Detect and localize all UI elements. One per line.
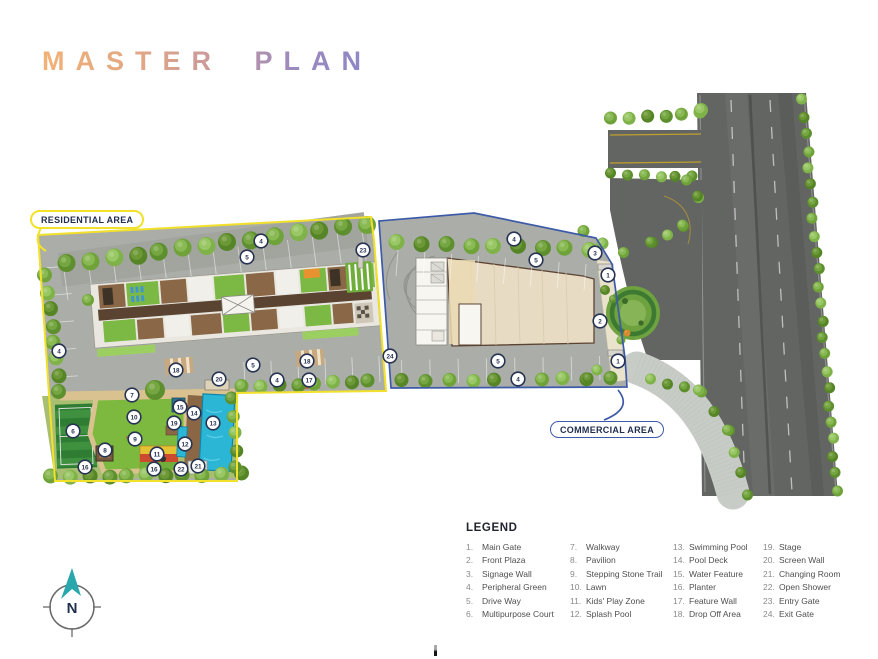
legend-item-label: Feature Wall <box>689 595 737 608</box>
legend-columns: 1.Main Gate2.Front Plaza3.Signage Wall4.… <box>466 541 866 621</box>
plan-marker-number: 4 <box>57 348 61 355</box>
plan-marker: 20 <box>212 372 226 386</box>
tree-icon <box>604 371 618 385</box>
legend-item-num: 21. <box>763 568 779 581</box>
plan-marker: 5 <box>246 358 260 372</box>
tree-icon <box>43 301 58 316</box>
tree-icon <box>485 238 501 254</box>
tree-icon <box>618 247 629 258</box>
tree-icon <box>798 112 809 123</box>
tree-icon <box>693 385 704 396</box>
tree-icon <box>583 373 594 384</box>
plan-marker: 13 <box>206 416 220 430</box>
legend-item-num: 11. <box>570 595 586 608</box>
legend-item-num: 18. <box>673 608 689 621</box>
legend-item: 8.Pavilion <box>570 554 673 567</box>
plan-marker: 14 <box>187 406 201 420</box>
plan-marker-number: 5 <box>251 362 255 369</box>
tree-icon <box>214 467 229 482</box>
tree-icon <box>819 348 830 359</box>
tree-icon <box>824 382 835 393</box>
tree-icon <box>801 128 812 139</box>
plan-marker: 18 <box>169 363 183 377</box>
legend-column: 19.Stage20.Screen Wall21.Changing Room22… <box>763 541 863 621</box>
legend-item-num: 17. <box>673 595 689 608</box>
tree-icon <box>557 240 573 256</box>
tree-icon <box>722 425 733 436</box>
plan-marker: 11 <box>150 447 164 461</box>
tree-icon <box>389 234 405 250</box>
legend-item-label: Stepping Stone Trail <box>586 568 663 581</box>
legend-item-num: 5. <box>466 595 482 608</box>
plan-marker-number: 3 <box>593 250 597 257</box>
plan-marker: 4 <box>52 344 66 358</box>
legend-item: 22.Open Shower <box>763 581 863 594</box>
tree-icon <box>37 268 52 283</box>
plan-marker-number: 1 <box>616 358 620 365</box>
tree-icon <box>361 374 375 388</box>
tree-icon <box>729 447 740 458</box>
plan-marker-number: 22 <box>177 466 185 473</box>
tree-icon <box>443 373 457 387</box>
tree-icon <box>622 170 633 181</box>
legend-item-num: 1. <box>466 541 482 554</box>
tree-icon <box>174 239 192 257</box>
plan-marker: 18 <box>300 354 314 368</box>
tree-icon <box>600 285 610 295</box>
legend-item: 14.Pool Deck <box>673 554 763 567</box>
tree-icon <box>679 381 690 392</box>
plan-marker: 8 <box>98 443 112 457</box>
tree-icon <box>266 227 284 245</box>
tree-icon <box>802 162 813 173</box>
plan-marker: 21 <box>191 459 205 473</box>
plan-marker-number: 9 <box>133 436 137 443</box>
legend-item: 4.Peripheral Green <box>466 581 570 594</box>
plan-marker-number: 14 <box>190 410 198 417</box>
legend-item-num: 16. <box>673 581 689 594</box>
plan-marker: 3 <box>588 246 602 260</box>
plan-marker: 2 <box>593 314 607 328</box>
tree-icon <box>656 171 667 182</box>
legend: LEGEND 1.Main Gate2.Front Plaza3.Signage… <box>466 522 866 621</box>
legend-item-label: Peripheral Green <box>482 581 547 594</box>
plan-marker: 1 <box>611 354 625 368</box>
legend-item-num: 19. <box>763 541 779 554</box>
plan-marker-number: 18 <box>303 358 311 365</box>
legend-item-label: Drive Way <box>482 595 521 608</box>
legend-item: 5.Drive Way <box>466 595 570 608</box>
plan-marker: 24 <box>383 349 397 363</box>
tree-icon <box>254 380 268 394</box>
plan-marker: 10 <box>127 410 141 424</box>
legend-item: 19.Stage <box>763 541 863 554</box>
residential-area-label: RESIDENTIAL AREA <box>30 210 144 229</box>
tree-icon <box>326 375 340 389</box>
tree-icon <box>52 368 67 383</box>
plan-marker: 6 <box>66 424 80 438</box>
legend-item-label: Stage <box>779 541 801 554</box>
commercial-area-label-text: COMMERCIAL AREA <box>560 425 654 435</box>
tree-icon <box>681 175 692 186</box>
legend-item: 2.Front Plaza <box>466 554 570 567</box>
tree-icon <box>662 379 673 390</box>
tree-icon <box>229 461 242 474</box>
tree-icon <box>82 294 94 306</box>
plan-marker: 4 <box>270 373 284 387</box>
legend-item-label: Main Gate <box>482 541 521 554</box>
tree-icon <box>803 146 814 157</box>
legend-item-label: Planter <box>689 581 716 594</box>
legend-item-label: Signage Wall <box>482 568 532 581</box>
tree-icon <box>832 486 843 497</box>
plan-marker: 9 <box>128 432 142 446</box>
tree-icon <box>796 94 807 105</box>
tree-icon <box>414 236 430 252</box>
plan-marker-number: 4 <box>516 376 520 383</box>
legend-item-label: Water Feature <box>689 568 743 581</box>
plan-marker-number: 20 <box>215 376 223 383</box>
tree-icon <box>81 252 99 270</box>
commercial-area-label: COMMERCIAL AREA <box>550 421 664 438</box>
plan-marker: 15 <box>173 400 187 414</box>
tree-icon <box>592 365 603 376</box>
tree-icon <box>605 168 616 179</box>
plan-marker-number: 16 <box>81 464 89 471</box>
plan-marker-number: 10 <box>130 414 138 421</box>
plan-marker-number: 11 <box>154 451 161 458</box>
tree-icon <box>334 218 352 236</box>
plan-marker: 1 <box>601 268 615 282</box>
legend-item: 23.Entry Gate <box>763 595 863 608</box>
tree-icon <box>467 374 481 388</box>
tree-icon <box>145 380 165 400</box>
plan-marker: 12 <box>178 437 192 451</box>
legend-item-num: 15. <box>673 568 689 581</box>
tree-icon <box>828 433 839 444</box>
legend-item-num: 22. <box>763 581 779 594</box>
tree-icon <box>670 171 681 182</box>
tree-icon <box>677 220 688 231</box>
tree-icon <box>439 236 455 252</box>
tree-icon <box>815 297 826 308</box>
legend-item-label: Pool Deck <box>689 554 728 567</box>
legend-item-label: Drop Off Area <box>689 608 741 621</box>
tree-icon <box>809 231 820 242</box>
plan-marker-number: 23 <box>359 247 367 254</box>
legend-item: 24.Exit Gate <box>763 608 863 621</box>
plan-marker: 19 <box>167 416 181 430</box>
plan-marker-number: 4 <box>259 238 263 245</box>
legend-item: 12.Splash Pool <box>570 608 673 621</box>
legend-title: LEGEND <box>466 522 866 534</box>
legend-item-num: 3. <box>466 568 482 581</box>
plan-marker: 4 <box>511 372 525 386</box>
legend-item-num: 12. <box>570 608 586 621</box>
legend-item-num: 6. <box>466 608 482 621</box>
roundabout-green <box>606 286 660 340</box>
tree-icon <box>229 426 242 439</box>
legend-item-num: 14. <box>673 554 689 567</box>
plan-marker: 16 <box>147 462 161 476</box>
legend-item-num: 2. <box>466 554 482 567</box>
plan-marker-number: 21 <box>194 463 202 470</box>
tree-icon <box>198 237 216 255</box>
tree-icon <box>817 332 828 343</box>
residential-area-label-text: RESIDENTIAL AREA <box>41 215 133 225</box>
legend-column: 7.Walkway8.Pavilion9.Stepping Stone Trai… <box>570 541 673 621</box>
compass-north-letter: N <box>67 600 78 617</box>
legend-item-label: Swimming Pool <box>689 541 748 554</box>
legend-item: 16.Planter <box>673 581 763 594</box>
legend-item-label: Entry Gate <box>779 595 820 608</box>
tree-icon <box>818 316 829 327</box>
tree-icon <box>813 282 824 293</box>
legend-item-label: Screen Wall <box>779 554 825 567</box>
tree-icon <box>692 191 703 202</box>
plan-marker: 7 <box>125 388 139 402</box>
tree-icon <box>807 197 818 208</box>
plan-marker-number: 5 <box>534 257 538 264</box>
legend-item: 20.Screen Wall <box>763 554 863 567</box>
plan-marker-number: 4 <box>512 236 516 243</box>
tree-icon <box>827 451 838 462</box>
legend-item: 7.Walkway <box>570 541 673 554</box>
tree-icon <box>660 110 673 123</box>
tree-icon <box>742 490 753 501</box>
legend-item: 17.Feature Wall <box>673 595 763 608</box>
tree-icon <box>102 470 117 485</box>
tree-icon <box>826 417 837 428</box>
tree-icon <box>623 112 636 125</box>
tree-icon <box>395 373 409 387</box>
tree-icon <box>63 470 78 485</box>
tree-icon <box>675 108 688 121</box>
tree-icon <box>464 238 480 254</box>
plan-marker-number: 18 <box>172 367 180 374</box>
legend-item: 10.Lawn <box>570 581 673 594</box>
legend-item-label: Changing Room <box>779 568 840 581</box>
legend-item-label: Pavilion <box>586 554 616 567</box>
tree-icon <box>617 336 626 345</box>
tree-icon <box>310 222 328 240</box>
tree-icon <box>806 213 817 224</box>
legend-item: 13.Swimming Pool <box>673 541 763 554</box>
tree-icon <box>51 384 66 399</box>
legend-item-num: 20. <box>763 554 779 567</box>
tree-icon <box>58 254 76 272</box>
tree-icon <box>823 401 834 412</box>
legend-item: 9.Stepping Stone Trail <box>570 568 673 581</box>
tree-icon <box>811 247 822 258</box>
plan-marker-number: 16 <box>150 466 158 473</box>
plan-marker: 4 <box>254 234 268 248</box>
compass: N <box>34 563 110 643</box>
legend-item-num: 13. <box>673 541 689 554</box>
legend-item-label: Lawn <box>586 581 606 594</box>
plan-marker-number: 13 <box>209 420 217 427</box>
plan-marker-number: 19 <box>170 420 178 427</box>
tree-icon <box>641 110 654 123</box>
tree-icon <box>694 103 708 117</box>
plan-marker: 22 <box>174 462 188 476</box>
tree-icon <box>129 247 147 265</box>
plan-marker-number: 17 <box>305 377 313 384</box>
tree-icon <box>814 263 825 274</box>
tree-icon <box>535 373 549 387</box>
legend-item-label: Kids' Play Zone <box>586 595 645 608</box>
legend-item: 6.Multipurpose Court <box>466 608 570 621</box>
legend-item-num: 7. <box>570 541 586 554</box>
tree-icon <box>235 379 249 393</box>
plan-marker-number: 4 <box>275 377 279 384</box>
legend-item: 15.Water Feature <box>673 568 763 581</box>
tree-icon <box>487 373 501 387</box>
tree-icon <box>805 178 816 189</box>
tree-icon <box>709 406 720 417</box>
plan-marker-number: 6 <box>71 428 75 435</box>
plan-marker-number: 1 <box>606 272 610 279</box>
tree-icon <box>645 237 656 248</box>
tree-icon <box>290 223 308 241</box>
legend-item-num: 8. <box>570 554 586 567</box>
legend-item-num: 9. <box>570 568 586 581</box>
page-title: MASTER PLAN <box>42 46 372 77</box>
plan-marker: 5 <box>529 253 543 267</box>
plan-marker-number: 24 <box>386 353 394 360</box>
legend-item-label: Exit Gate <box>779 608 814 621</box>
tree-icon <box>419 374 433 388</box>
legend-item: 11.Kids' Play Zone <box>570 595 673 608</box>
tree-icon <box>639 169 650 180</box>
legend-item: 1.Main Gate <box>466 541 570 554</box>
tree-icon <box>556 371 570 385</box>
tree-icon <box>345 375 359 389</box>
tree-icon <box>735 467 746 478</box>
tree-icon <box>822 366 833 377</box>
legend-item: 21.Changing Room <box>763 568 863 581</box>
legend-item-label: Front Plaza <box>482 554 525 567</box>
legend-column: 13.Swimming Pool14.Pool Deck15.Water Fea… <box>673 541 763 621</box>
tree-icon <box>624 330 631 337</box>
tree-icon <box>150 243 168 261</box>
legend-item-label: Walkway <box>586 541 620 554</box>
tree-icon <box>604 112 617 125</box>
plan-marker-number: 15 <box>176 404 184 411</box>
legend-item-label: Splash Pool <box>586 608 631 621</box>
legend-item-num: 4. <box>466 581 482 594</box>
tree-icon <box>46 319 61 334</box>
plan-marker: 23 <box>356 243 370 257</box>
plan-marker-number: 5 <box>245 254 249 261</box>
page-edge-artifact <box>434 645 437 656</box>
legend-item-label: Multipurpose Court <box>482 608 554 621</box>
legend-item: 18.Drop Off Area <box>673 608 763 621</box>
legend-item-num: 24. <box>763 608 779 621</box>
plan-marker-number: 12 <box>181 441 189 448</box>
plan-marker-number: 2 <box>598 318 602 325</box>
legend-item-num: 10. <box>570 581 586 594</box>
tree-icon <box>662 230 673 241</box>
plan-marker-number: 7 <box>130 392 134 399</box>
tree-icon <box>218 233 236 251</box>
plan-marker-number: 5 <box>496 358 500 365</box>
legend-item: 3.Signage Wall <box>466 568 570 581</box>
tree-icon <box>830 467 841 478</box>
tree-icon <box>105 248 123 266</box>
tree-icon <box>645 374 656 385</box>
plan-marker: 16 <box>78 460 92 474</box>
plan-marker: 17 <box>302 373 316 387</box>
legend-item-num: 23. <box>763 595 779 608</box>
legend-item-label: Open Shower <box>779 581 831 594</box>
master-plan-page: { "title": "MASTER PLAN", "labels": { "r… <box>0 0 878 659</box>
plan-marker-number: 8 <box>103 447 107 454</box>
legend-column: 1.Main Gate2.Front Plaza3.Signage Wall4.… <box>466 541 570 621</box>
plan-marker: 5 <box>240 250 254 264</box>
north-arrow-icon <box>61 568 81 599</box>
plan-marker: 5 <box>491 354 505 368</box>
plan-marker: 4 <box>507 232 521 246</box>
